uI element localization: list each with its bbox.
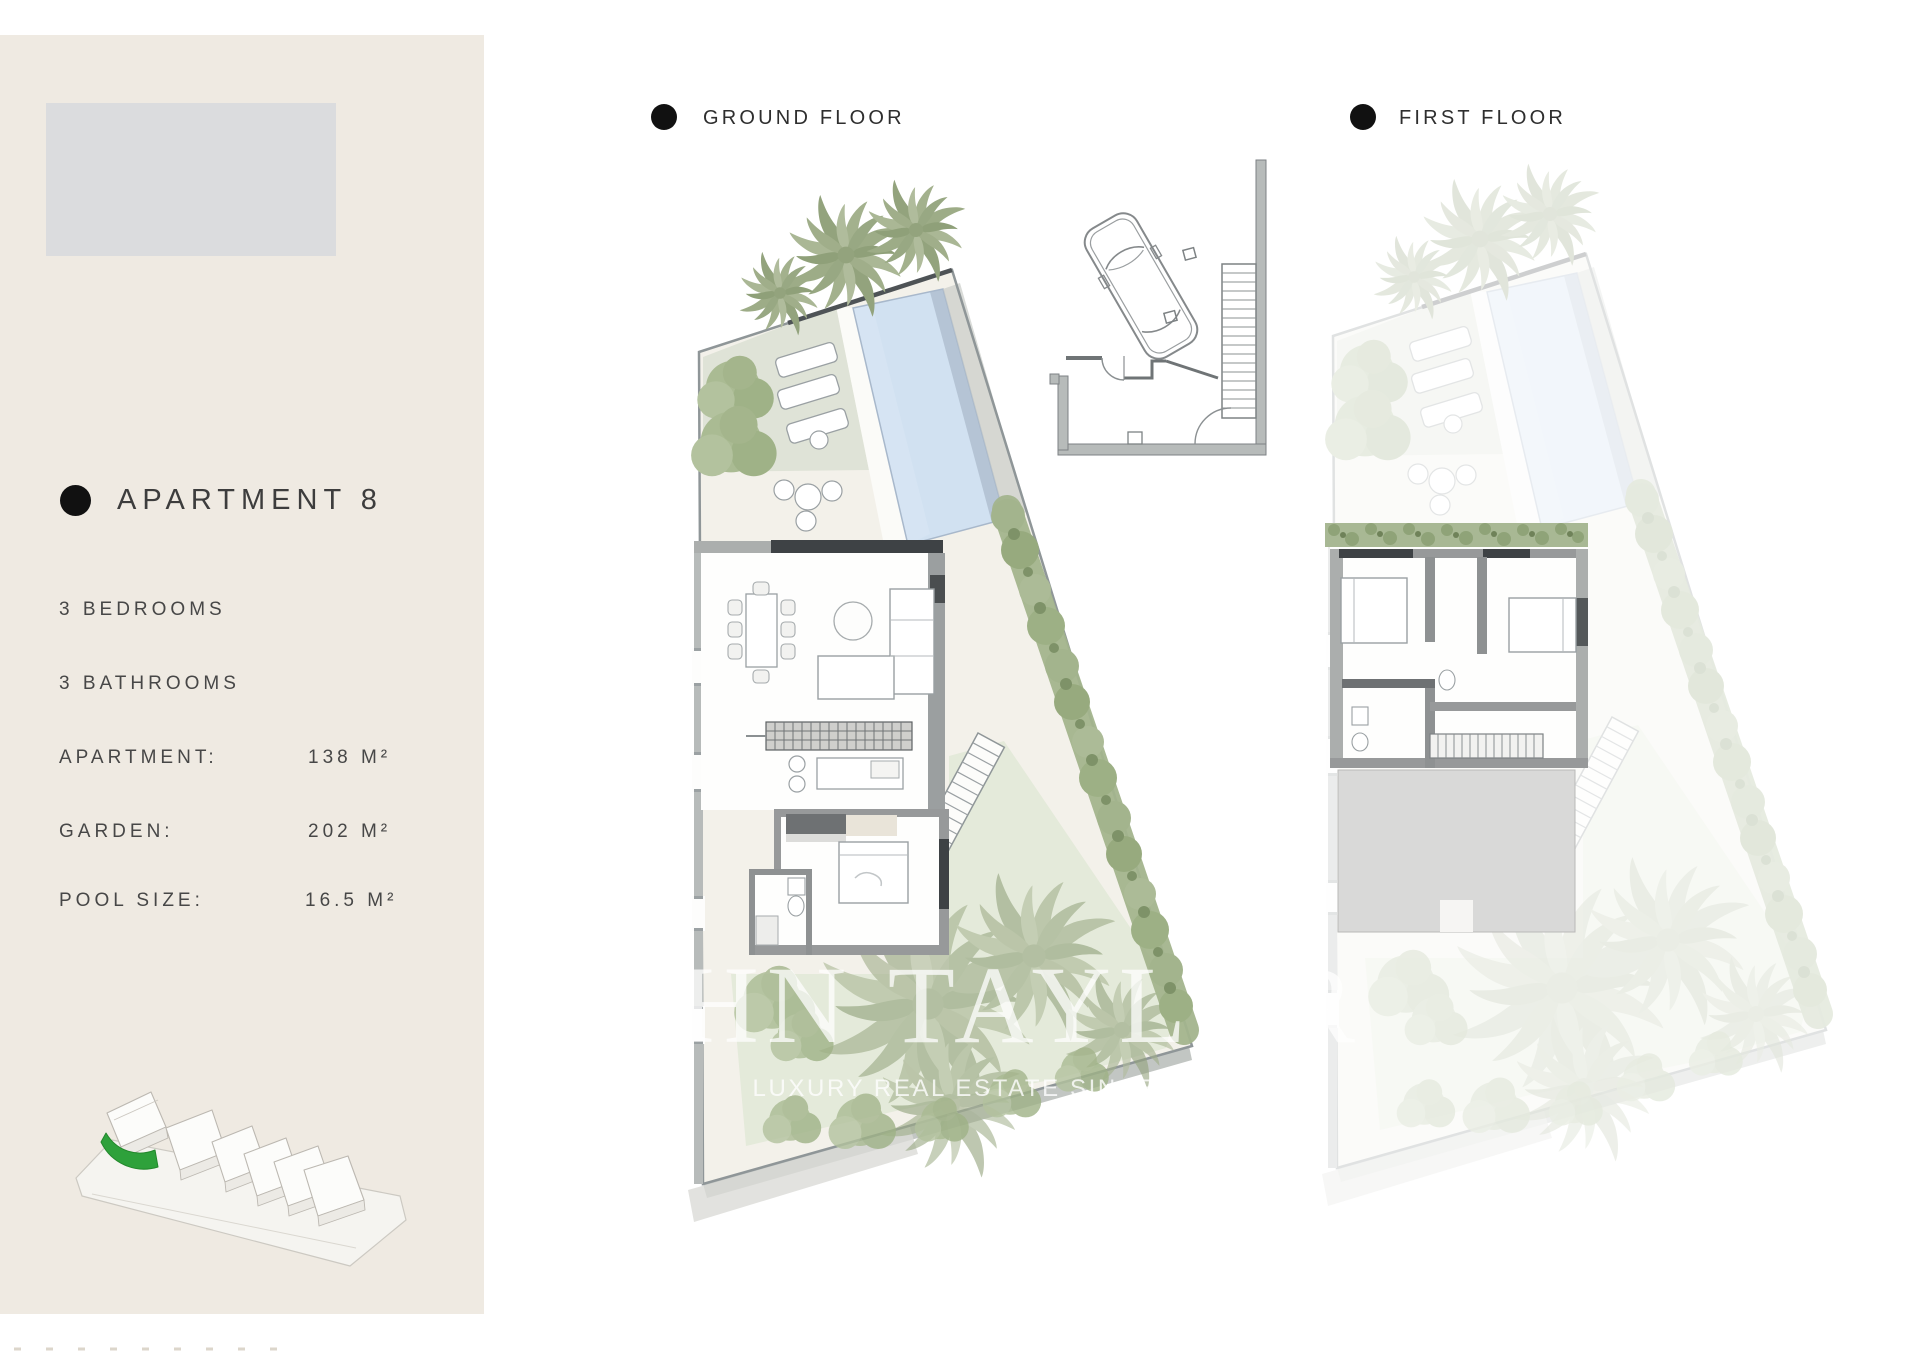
svg-text:JOHN TAYLOR: JOHN TAYLOR bbox=[541, 944, 1363, 1066]
svg-text:LUXURY REAL ESTATE SINCE 1864: LUXURY REAL ESTATE SINCE 1864 bbox=[753, 1075, 1230, 1102]
